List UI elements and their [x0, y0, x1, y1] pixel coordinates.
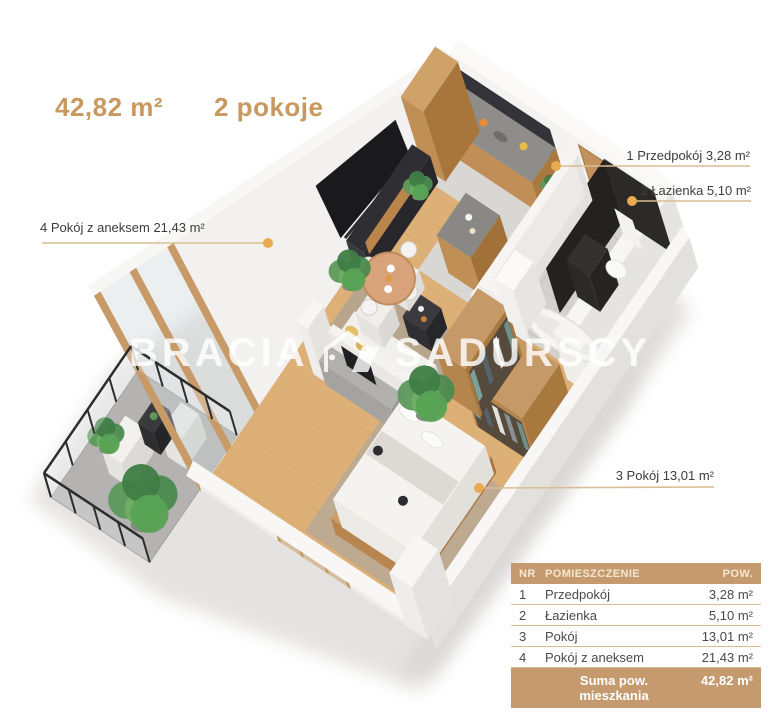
- room-label-przedpokoj: 1 Przedpokój 3,28 m²: [626, 148, 750, 163]
- table-cell: Pokój: [545, 629, 683, 644]
- leader-dot-2: [627, 196, 637, 206]
- table-footer-label: Suma pow. mieszkania: [545, 673, 683, 703]
- table-cell: 3,28 m²: [683, 587, 753, 602]
- leader-dot-4: [263, 238, 273, 248]
- table-cell: 1: [519, 587, 545, 602]
- floor-plan-flyer: BRACIA SADURSCY 42,82 m² 2 pokoje 1 Prze…: [0, 0, 774, 722]
- table-row: 4Pokój z aneksem21,43 m²: [511, 647, 761, 668]
- room-label-lazienka: 2 Łazienka 5,10 m²: [640, 183, 751, 198]
- table-cell: 21,43 m²: [683, 650, 753, 665]
- table-cell: Pokój z aneksem: [545, 650, 683, 665]
- leader-dot-1: [551, 161, 561, 171]
- table-row: 1Przedpokój3,28 m²: [511, 584, 761, 605]
- table-body: 1Przedpokój3,28 m²2Łazienka5,10 m²3Pokój…: [511, 584, 761, 668]
- room-label-pokoj-z-aneksem: 4 Pokój z aneksem 21,43 m²: [40, 220, 205, 235]
- table-cell: 3: [519, 629, 545, 644]
- table-cell: 13,01 m²: [683, 629, 753, 644]
- table-header-room: POMIESZCZENIE: [545, 568, 683, 580]
- table-footer-row: Suma pow. mieszkania 42,82 m²: [511, 668, 761, 708]
- room-area-table: NR POMIESZCZENIE POW. 1Przedpokój3,28 m²…: [511, 563, 761, 708]
- table-cell: 5,10 m²: [683, 608, 753, 623]
- table-header-nr: NR: [519, 568, 545, 580]
- table-row: 2Łazienka5,10 m²: [511, 605, 761, 626]
- table-cell: Łazienka: [545, 608, 683, 623]
- table-cell: Przedpokój: [545, 587, 683, 602]
- table-footer-value: 42,82 m²: [683, 673, 753, 703]
- table-cell: 2: [519, 608, 545, 623]
- leader-line-3: [479, 487, 714, 488]
- room-label-pokoj: 3 Pokój 13,01 m²: [616, 468, 714, 483]
- table-cell: 4: [519, 650, 545, 665]
- table-header-area: POW.: [683, 568, 753, 580]
- table-header-row: NR POMIESZCZENIE POW.: [511, 563, 761, 584]
- leader-dot-3: [474, 483, 484, 493]
- table-row: 3Pokój13,01 m²: [511, 626, 761, 647]
